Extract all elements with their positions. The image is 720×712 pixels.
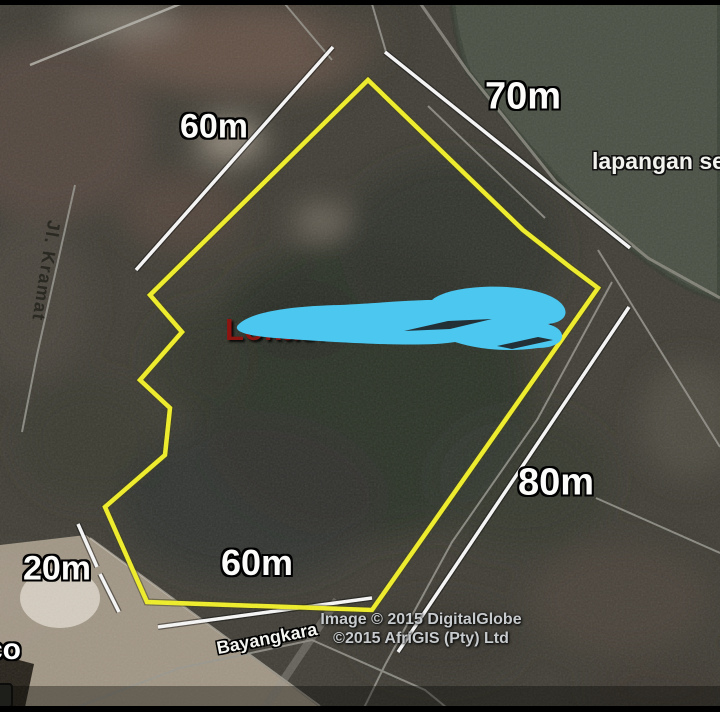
measurement-label-60m-top-left: 60m bbox=[180, 108, 248, 147]
attribution-line1: Image © 2015 DigitalGlobe bbox=[320, 611, 521, 629]
corner-ui-chip bbox=[0, 683, 13, 708]
measurement-label-20m: 20m bbox=[23, 550, 91, 589]
measurement-label-70m: 70m bbox=[485, 76, 561, 119]
measurement-label-80m: 80m bbox=[518, 462, 594, 505]
satellite-imagery bbox=[0, 0, 720, 712]
grain-overlay bbox=[0, 0, 720, 712]
attribution-line2: ©2015 AfriGIS (Pty) Ltd bbox=[333, 630, 509, 648]
status-bar: Imagery Date: 6/2/20156°54'34.78" S 10 bbox=[0, 686, 720, 706]
location-label-right: m2 bbox=[506, 312, 552, 348]
location-label-left: Lokasi Tan bbox=[225, 312, 390, 348]
measurement-label-60m-bottom: 60m bbox=[221, 542, 293, 584]
top-letterbox-bar bbox=[0, 0, 720, 5]
satellite-map-view[interactable]: Lokasi Tan m2 60m 70m 80m 60m 20m lapang… bbox=[0, 0, 720, 712]
field-label: lapangan sec bbox=[592, 148, 720, 175]
corner-label-partial: co bbox=[0, 633, 21, 667]
bottom-letterbox-bar bbox=[0, 706, 720, 712]
